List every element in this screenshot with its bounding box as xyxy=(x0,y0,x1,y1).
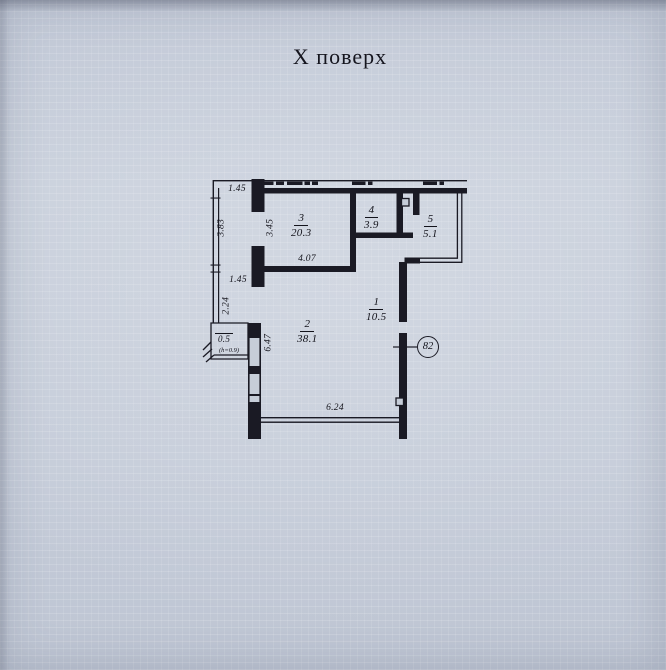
room-area: 38.1 xyxy=(297,332,317,345)
room-area: 20.3 xyxy=(291,226,311,239)
floor-plan-drawing xyxy=(0,0,666,670)
room-3-label: 3 20.3 xyxy=(291,212,311,239)
room-area: 5.1 xyxy=(423,227,438,240)
niche-height-note: (h=0.9) xyxy=(212,348,246,355)
dim-room2-left: 6.47 xyxy=(264,328,274,358)
room-area: 10.5 xyxy=(366,310,386,323)
floor-plan-photo: Х поверх xyxy=(0,0,666,670)
room-number: 4 xyxy=(365,204,379,218)
dim-room3-left: 3.45 xyxy=(266,213,276,243)
dim-top-left: 1.45 xyxy=(222,185,252,195)
dim-left-window-upper: 3.83 xyxy=(217,213,227,243)
window-symbols xyxy=(261,182,444,185)
dim-left-window-lower: 2.24 xyxy=(222,291,232,321)
niche-area: 0.5 xyxy=(215,333,233,345)
room-2-label: 2 38.1 xyxy=(297,318,317,345)
room-number: 3 xyxy=(294,212,308,226)
niche-label: 0.5 xyxy=(215,333,233,345)
room-area: 3.9 xyxy=(364,218,379,231)
dim-mid-left: 1.45 xyxy=(223,276,253,286)
room-5-label: 5 5.1 xyxy=(423,213,438,240)
dim-room3-bottom: 4.07 xyxy=(292,255,322,265)
room-number: 5 xyxy=(424,213,438,227)
apartment-number-badge: 82 xyxy=(417,336,439,358)
room-1-label: 1 10.5 xyxy=(366,296,386,323)
dim-bottom-width: 6.24 xyxy=(320,404,350,414)
room-number: 2 xyxy=(300,318,314,332)
room-number: 1 xyxy=(369,296,383,310)
room-4-label: 4 3.9 xyxy=(364,204,379,231)
